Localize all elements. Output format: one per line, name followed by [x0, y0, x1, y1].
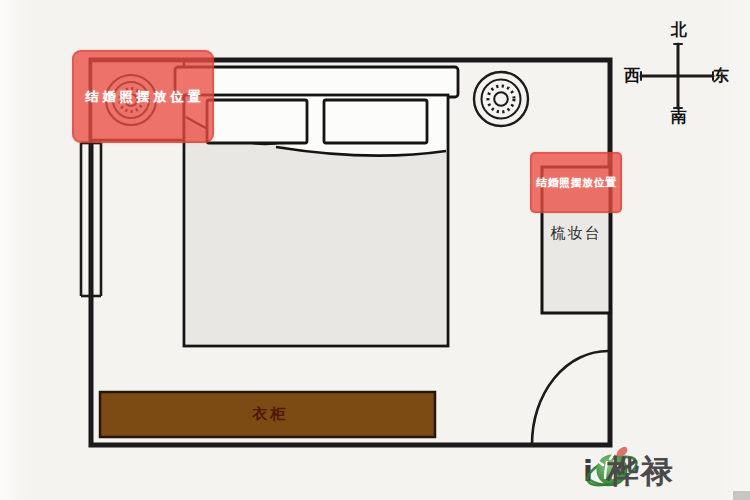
door-arc: [532, 351, 608, 444]
wardrobe-label: 衣柜: [100, 392, 438, 437]
highlight-left-label: 结婚照摆放位置: [86, 88, 205, 106]
floorplan-canvas: 结婚照摆放位置 结婚照摆放位置 梳妆台 衣柜 北 南 东 西 i - 桦禄: [0, 0, 750, 500]
pillow-left: [207, 100, 307, 143]
highlight-wedding-photo-spot-right: 结婚照摆放位置: [530, 152, 622, 213]
compass-west-label: 西: [624, 66, 640, 87]
compass-south-label: 南: [671, 107, 687, 128]
highlight-wedding-photo-spot-left: 结婚照摆放位置: [72, 50, 214, 143]
compass-cross-icon: [641, 44, 713, 108]
bed: [175, 67, 458, 346]
compass-east-label: 东: [713, 66, 729, 87]
site-watermark-logo: i - 桦禄: [583, 447, 675, 495]
pillow-right: [324, 100, 427, 143]
logo-brand-text: 桦禄: [607, 455, 675, 487]
speaker-right-icon: [474, 72, 528, 126]
corner-watermark-fragment: [733, 491, 750, 500]
highlight-right-label: 结婚照摆放位置: [536, 176, 617, 190]
compass-north-label: 北: [671, 20, 687, 41]
vanity-label: 梳妆台: [542, 224, 610, 243]
bed-headboard: [175, 67, 458, 97]
